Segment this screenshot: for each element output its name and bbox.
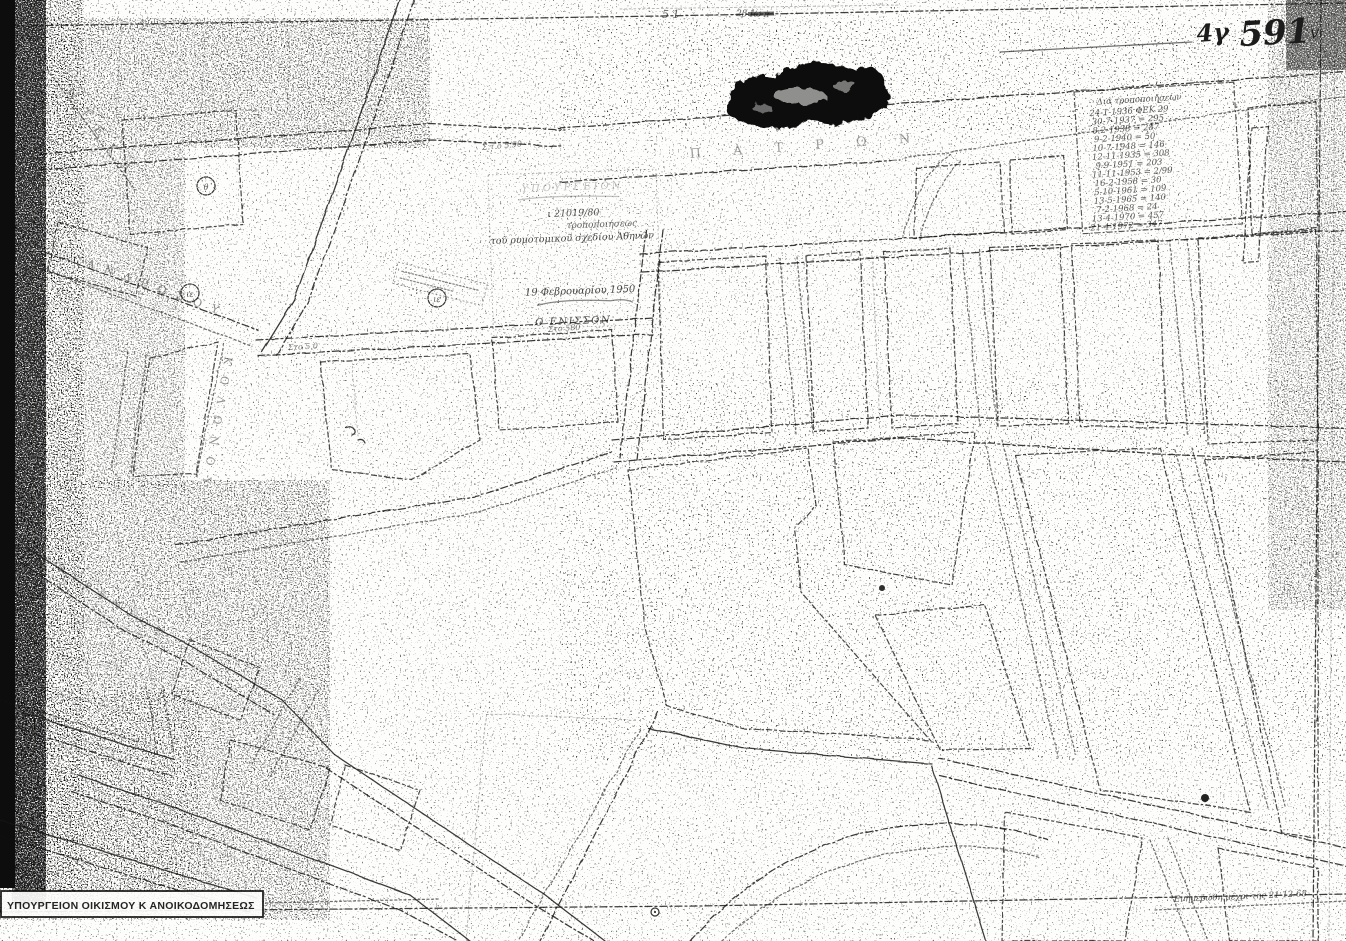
sheet-code-number: 591: [1238, 11, 1311, 55]
block-marker-label: θ: [204, 183, 209, 192]
left-scan-bar: [0, 0, 15, 888]
dimension-note: Στο 5.0: [287, 341, 319, 352]
sheet-code-check: v: [1310, 23, 1319, 42]
map-canvas: θ ιε ιε ΥΠΟΥΡΓΕΙΟΝ ι 21019/80 τροποποιήσ…: [0, 0, 1346, 941]
ministry-stamp-text: ΥΠΟΥΡΓΕΙΟΝ ΟΙΚΙΣΜΟΥ Κ ΑΝΟΙΚΟΔΟΜΗΣΕΩΣ: [7, 900, 255, 912]
faded-header-remnant: Α Γ Σ Ο 3: [99, 18, 190, 33]
block-marker-label: ιε: [433, 295, 440, 304]
scanned-city-plan-sheet: θ ιε ιε ΥΠΟΥΡΓΕΙΟΝ ι 21019/80 τροποποιήσ…: [0, 0, 1346, 941]
ink-dot: [1201, 794, 1209, 802]
sheet-code-prefix: 4γ: [1195, 17, 1231, 48]
ink-dot: [879, 585, 885, 591]
top-margin-mark: 5 1: [662, 8, 680, 21]
ink-smudge: [748, 12, 774, 16]
stamp-protocol: ι 21019/80: [547, 207, 600, 220]
